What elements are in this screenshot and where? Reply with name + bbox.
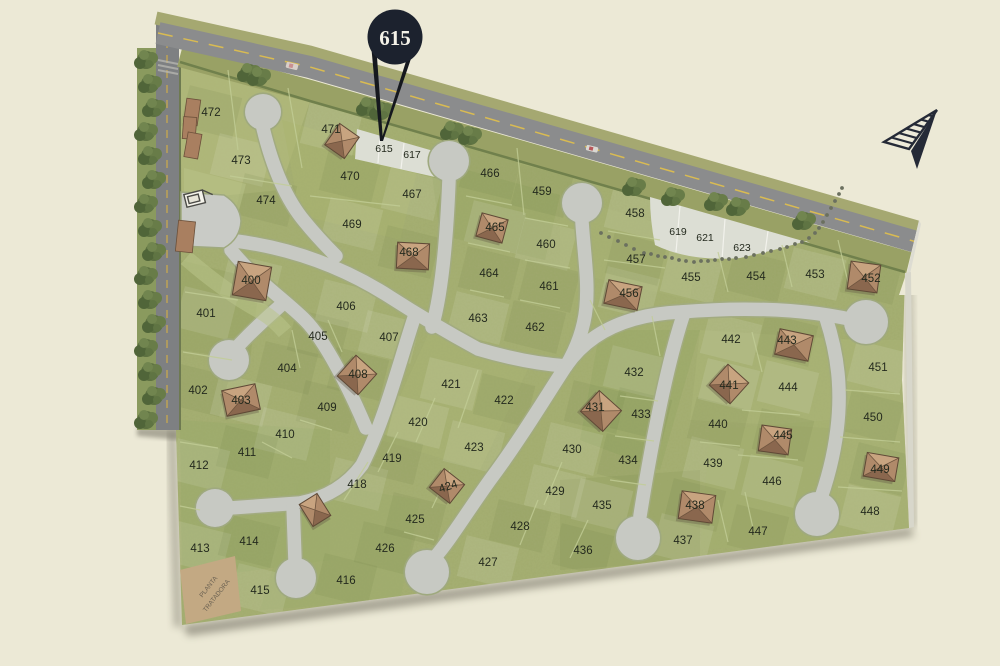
svg-text:436: 436 bbox=[573, 545, 592, 557]
svg-text:420: 420 bbox=[408, 417, 427, 429]
svg-text:470: 470 bbox=[340, 171, 359, 183]
svg-text:467: 467 bbox=[402, 189, 421, 201]
svg-text:409: 409 bbox=[317, 402, 336, 414]
svg-text:459: 459 bbox=[532, 186, 551, 198]
svg-text:422: 422 bbox=[494, 395, 513, 407]
svg-text:419: 419 bbox=[382, 453, 401, 465]
svg-text:440: 440 bbox=[708, 419, 727, 431]
svg-text:615: 615 bbox=[375, 143, 393, 155]
svg-text:447: 447 bbox=[748, 526, 767, 538]
svg-text:461: 461 bbox=[539, 281, 558, 293]
svg-text:426: 426 bbox=[375, 543, 394, 555]
svg-text:432: 432 bbox=[624, 367, 643, 379]
svg-text:466: 466 bbox=[480, 168, 499, 180]
svg-text:439: 439 bbox=[703, 458, 722, 470]
svg-text:442: 442 bbox=[721, 334, 740, 346]
svg-text:404: 404 bbox=[277, 363, 297, 375]
svg-text:464: 464 bbox=[479, 268, 499, 280]
svg-text:452: 452 bbox=[861, 273, 880, 285]
svg-text:401: 401 bbox=[196, 308, 215, 320]
svg-text:425: 425 bbox=[405, 514, 424, 526]
svg-text:435: 435 bbox=[592, 500, 611, 512]
svg-text:623: 623 bbox=[733, 242, 751, 254]
svg-text:416: 416 bbox=[336, 575, 355, 587]
svg-text:457: 457 bbox=[626, 254, 645, 266]
svg-text:474: 474 bbox=[256, 195, 276, 207]
svg-text:413: 413 bbox=[190, 543, 209, 555]
svg-text:408: 408 bbox=[348, 369, 367, 381]
svg-text:428: 428 bbox=[510, 521, 529, 533]
svg-text:403: 403 bbox=[231, 395, 250, 407]
svg-text:433: 433 bbox=[631, 409, 650, 421]
svg-text:434: 434 bbox=[618, 455, 638, 467]
svg-text:453: 453 bbox=[805, 269, 824, 281]
svg-text:446: 446 bbox=[762, 476, 781, 488]
svg-text:472: 472 bbox=[201, 107, 220, 119]
svg-text:429: 429 bbox=[545, 486, 564, 498]
svg-text:469: 469 bbox=[342, 219, 361, 231]
svg-text:407: 407 bbox=[379, 332, 398, 344]
svg-text:427: 427 bbox=[478, 557, 497, 569]
svg-text:421: 421 bbox=[441, 379, 460, 391]
svg-text:418: 418 bbox=[347, 479, 366, 491]
svg-text:423: 423 bbox=[464, 442, 483, 454]
svg-text:456: 456 bbox=[619, 288, 638, 300]
svg-text:412: 412 bbox=[189, 460, 208, 472]
svg-text:400: 400 bbox=[241, 275, 260, 287]
svg-text:405: 405 bbox=[308, 331, 327, 343]
svg-text:465: 465 bbox=[485, 222, 504, 234]
svg-text:468: 468 bbox=[399, 247, 418, 259]
svg-text:619: 619 bbox=[669, 226, 687, 238]
svg-text:615: 615 bbox=[379, 26, 411, 50]
svg-text:455: 455 bbox=[681, 272, 700, 284]
svg-text:406: 406 bbox=[336, 301, 355, 313]
svg-text:462: 462 bbox=[525, 322, 544, 334]
svg-text:454: 454 bbox=[746, 271, 766, 283]
svg-text:437: 437 bbox=[673, 535, 692, 547]
svg-text:411: 411 bbox=[238, 447, 256, 459]
svg-text:458: 458 bbox=[625, 208, 644, 220]
svg-text:448: 448 bbox=[860, 506, 879, 518]
svg-text:617: 617 bbox=[403, 149, 421, 161]
svg-text:438: 438 bbox=[685, 500, 704, 512]
svg-text:431: 431 bbox=[585, 402, 604, 414]
svg-text:473: 473 bbox=[231, 155, 250, 167]
svg-text:621: 621 bbox=[696, 232, 714, 244]
svg-text:410: 410 bbox=[275, 429, 294, 441]
svg-text:445: 445 bbox=[773, 430, 792, 442]
svg-text:402: 402 bbox=[188, 385, 207, 397]
svg-text:415: 415 bbox=[250, 585, 269, 597]
svg-text:449: 449 bbox=[870, 464, 889, 476]
svg-text:443: 443 bbox=[777, 335, 796, 347]
svg-text:463: 463 bbox=[468, 313, 487, 325]
svg-text:450: 450 bbox=[863, 412, 882, 424]
svg-text:471: 471 bbox=[321, 124, 340, 136]
svg-text:414: 414 bbox=[239, 536, 259, 548]
svg-text:460: 460 bbox=[536, 239, 555, 251]
svg-text:444: 444 bbox=[778, 382, 798, 394]
svg-text:430: 430 bbox=[562, 444, 581, 456]
svg-text:451: 451 bbox=[868, 362, 887, 374]
svg-text:441: 441 bbox=[719, 380, 738, 392]
